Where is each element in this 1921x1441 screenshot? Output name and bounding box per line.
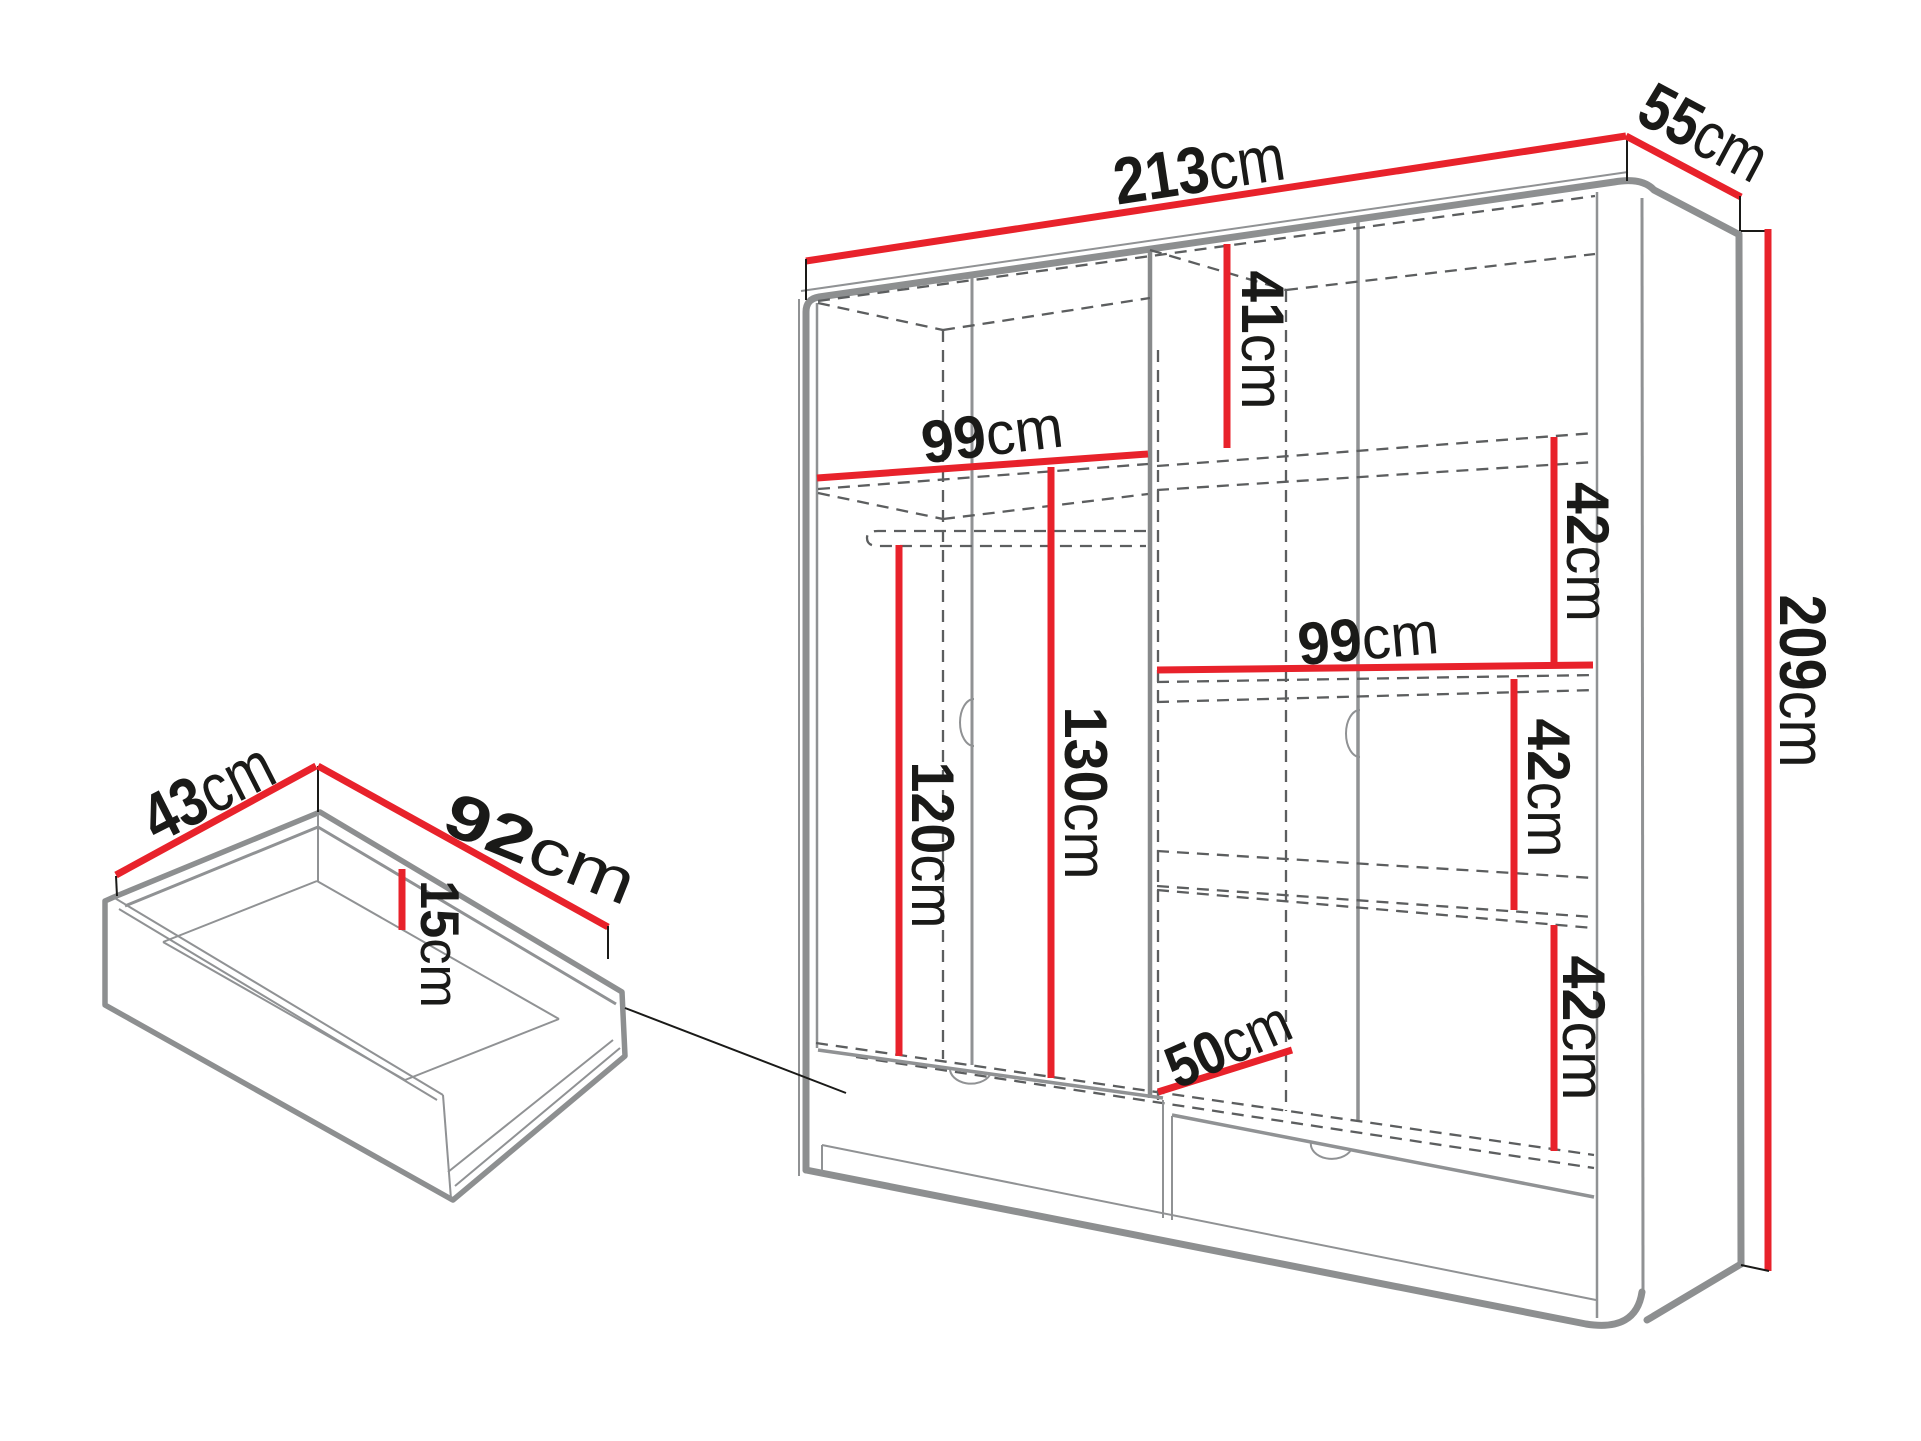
svg-text:209cm: 209cm [1766,595,1840,768]
svg-text:42cm: 42cm [1516,719,1583,858]
svg-text:130cm: 130cm [1053,707,1120,880]
svg-text:42cm: 42cm [1551,956,1618,1101]
svg-text:42cm: 42cm [1555,482,1622,622]
svg-text:120cm: 120cm [900,762,967,929]
svg-text:99cm: 99cm [1295,598,1441,677]
svg-text:41cm: 41cm [1230,271,1297,410]
svg-text:15cm: 15cm [409,880,471,1008]
